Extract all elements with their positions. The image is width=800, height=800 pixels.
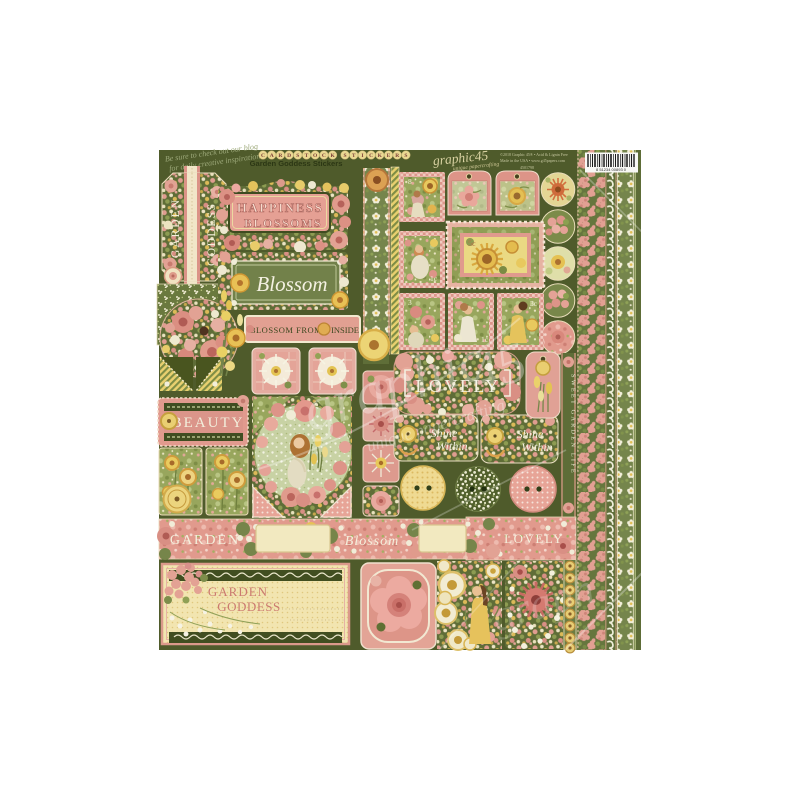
svg-text:Blossom: Blossom — [345, 534, 399, 549]
svg-text:Shine: Shine — [517, 427, 544, 441]
svg-text:S: S — [343, 153, 346, 159]
svg-text:E: E — [387, 153, 391, 159]
svg-text:GARDEN: GARDEN — [208, 584, 268, 599]
svg-text:3c: 3c — [530, 299, 538, 308]
svg-text:SWEET GARDEN LIFE: SWEET GARDEN LIFE — [570, 374, 577, 475]
svg-text:Blossom: Blossom — [256, 272, 327, 296]
svg-text:8: 8 — [408, 177, 412, 186]
svg-text:T: T — [352, 153, 356, 159]
svg-text:GARDEN: GARDEN — [170, 198, 182, 258]
svg-text:4501798: 4501798 — [520, 165, 534, 170]
svg-text:3: 3 — [408, 298, 412, 307]
svg-text:K: K — [378, 153, 383, 159]
svg-text:I: I — [361, 153, 363, 159]
svg-text:Garden Goddess Stickers: Garden Goddess Stickers — [250, 159, 343, 168]
svg-text:8 51234 00893 0: 8 51234 00893 0 — [596, 167, 627, 172]
svg-text:GODDESS: GODDESS — [217, 599, 280, 614]
svg-text:C: C — [369, 153, 373, 159]
svg-text:©2018 Graphic 45® • Acid & Lig: ©2018 Graphic 45® • Acid & Lignin Free — [500, 152, 568, 157]
svg-text:Within: Within — [436, 439, 467, 453]
svg-text:Within: Within — [521, 440, 552, 454]
svg-text:S: S — [404, 153, 407, 159]
svg-text:LOVELY: LOVELY — [504, 531, 564, 546]
svg-text:INSIDE: INSIDE — [331, 325, 359, 335]
svg-text:GARDEN: GARDEN — [170, 533, 240, 548]
svg-text:1c: 1c — [430, 274, 438, 283]
svg-text:BLOSSOMS: BLOSSOMS — [244, 216, 322, 230]
svg-text:BLOSSOM FROM: BLOSSOM FROM — [250, 325, 322, 335]
svg-text:Made in the USA • www.g45paper: Made in the USA • www.g45papers.com — [500, 158, 566, 163]
svg-text:5c: 5c — [468, 239, 476, 248]
svg-text:HAPPINESS: HAPPINESS — [237, 200, 323, 215]
svg-text:BEAUTY: BEAUTY — [172, 415, 245, 431]
